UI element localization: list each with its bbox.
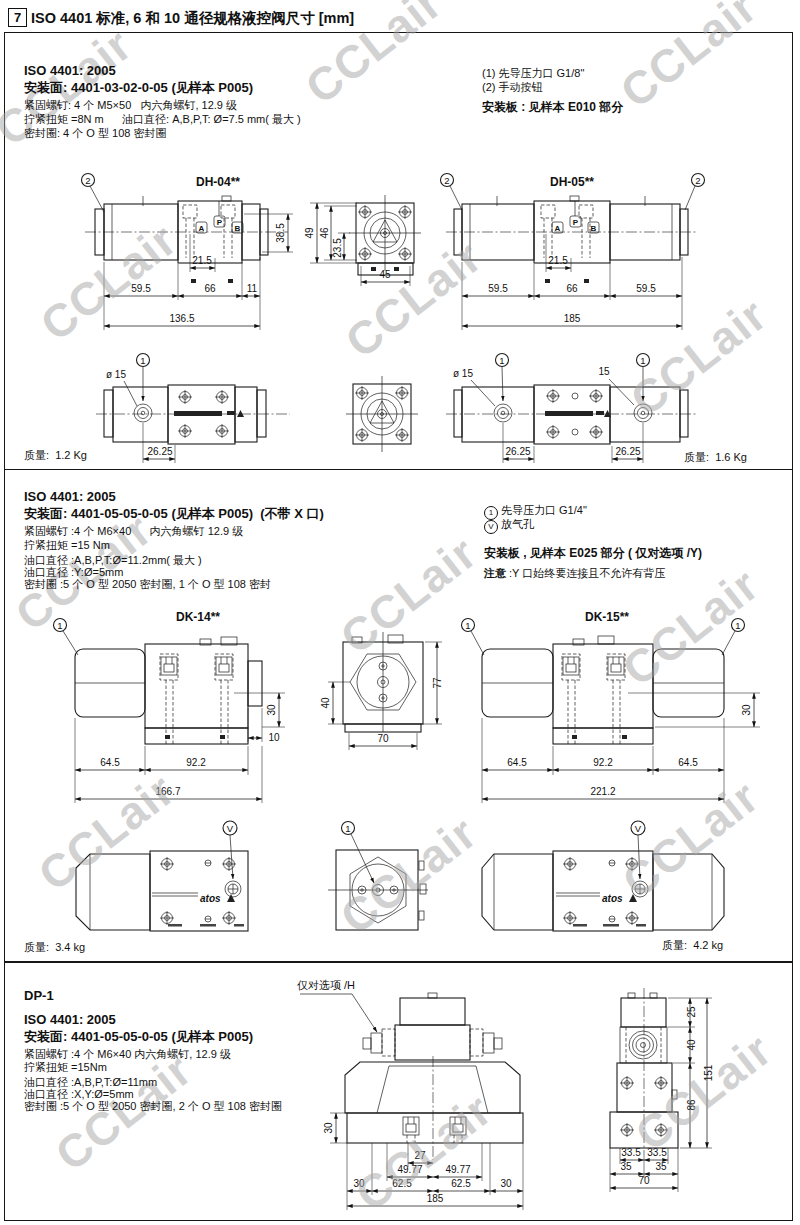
dim-label: 35: [655, 1161, 667, 1172]
section-number-badge: 7: [8, 8, 27, 27]
drawing-hexflange-top: 77 40 70: [320, 632, 443, 750]
s2-note1-text: 先导压力口 G1/4": [501, 504, 587, 516]
dim-label: 62.5: [392, 1178, 412, 1189]
callout-label: 2: [85, 175, 90, 186]
dim-label: 40: [686, 1039, 697, 1051]
s3-model: DP-1: [24, 988, 54, 1003]
drawing-hexflange-bottom: 1: [328, 822, 428, 931]
dim-label: 25: [686, 1006, 697, 1018]
s1-iso: ISO 4401: 2005: [24, 63, 116, 78]
drawing-flange-top: 49 46 23.5 45: [304, 195, 421, 286]
dim-label: 21.5: [548, 255, 568, 266]
dim-label: 64.5: [100, 757, 120, 768]
callout-label: 1: [345, 823, 350, 834]
dim-label: 10: [268, 732, 280, 743]
dim-label: 59.5: [131, 283, 151, 294]
dim-label: 33.5: [621, 1147, 641, 1158]
dim-label: 86: [686, 1099, 697, 1111]
s3-spec2: 拧紧扭矩 =15Nm: [24, 1060, 107, 1075]
dim-label: 59.5: [488, 283, 508, 294]
drawing-dp1-side: 25 40 86 151 33.5 33.5 35 35 70: [610, 988, 714, 1192]
dim-label: 15: [598, 366, 610, 377]
drawing-dp1-front: 30 27 49.77 49.77 30 62.5 62.5 30 185: [300, 993, 523, 1210]
dim-label: 77: [432, 677, 443, 689]
dim-label: 35: [620, 1161, 632, 1172]
callout-label: 1: [735, 620, 740, 631]
atos-triangle-icon: [629, 894, 637, 902]
s1-note2: (2) 手动按钮: [482, 80, 543, 95]
callout-label: V: [227, 823, 234, 834]
dim-label: 59.5: [636, 283, 656, 294]
dim-label: 151: [703, 1064, 714, 1081]
s2-spec1: 紧固螺钉 :4 个 M6×40 内六角螺钉 12.9 级: [24, 524, 243, 539]
dim-label: ø 15: [106, 369, 126, 380]
dim-label: 49: [304, 227, 315, 239]
s2-weight-right: 质量: 4.2 kg: [662, 938, 723, 953]
atos-logo: atos: [602, 893, 623, 904]
dim-label: 11: [247, 283, 258, 294]
dim-label: 64.5: [678, 757, 698, 768]
dim-label: 46: [319, 227, 330, 239]
s2-spec5: 密封圈 :5 个 O 型 2050 密封圈, 1 个 O 型 108 密封: [24, 577, 271, 592]
dim-label: ø 15: [453, 368, 473, 379]
port-p-label: P: [573, 218, 579, 227]
port-a-label: A: [555, 224, 561, 233]
dim-label: 49.77: [397, 1164, 422, 1175]
s1-spec1: 紧固螺钉: 4 个 M5×50 内六角螺钉, 12.9 级: [24, 98, 237, 113]
dim-label: 92.2: [593, 757, 613, 768]
drawing-dk15: DK-15** 1 1 30 64.5 92.: [462, 610, 761, 803]
dim-label: 62.5: [451, 1178, 471, 1189]
callout-label: 1: [465, 620, 470, 631]
dim-label: 26.25: [147, 446, 172, 457]
dim-label: 30: [500, 1178, 512, 1189]
s2-spec2: 拧紧扭矩 =15 Nm: [24, 538, 110, 553]
s3-mount: 安装面: 4401-05-05-0-05 (见样本 P005): [24, 1028, 253, 1046]
dim-label: 23.5: [332, 238, 343, 258]
s1-note3: 安装板 : 见样本 E010 部分: [482, 99, 623, 116]
dim-label: 64.5: [507, 757, 527, 768]
callout-label: 2: [695, 175, 700, 186]
dim-label: 27: [414, 1150, 426, 1161]
dim-label: 30: [353, 1178, 365, 1189]
dim-label: 185: [427, 1193, 444, 1204]
s1-spec3: 密封圈: 4 个 O 型 108 密封圈: [24, 126, 166, 141]
dim-label: 30: [323, 1122, 334, 1134]
dim-label: 221.2: [590, 786, 615, 797]
dim-label: 66: [566, 283, 578, 294]
dim-label: 26.25: [505, 446, 530, 457]
callout-label: 1: [57, 620, 62, 631]
drawing-dk15-topview: V atos: [482, 821, 724, 931]
port-p-label: P: [217, 218, 223, 227]
s2-weight-left: 质量: 3.4 kg: [24, 940, 85, 955]
dim-label: 30: [741, 704, 752, 716]
s2-mount: 安装面: 4401-05-05-0-05 (见样本 P005) (不带 X 口): [24, 505, 324, 523]
atos-logo: atos: [200, 893, 221, 904]
drawing-dh04-topview: 1 ø 15 26.25: [96, 354, 290, 464]
dim-label: 70: [638, 1175, 650, 1186]
dim-label: 136.5: [169, 313, 194, 324]
dim-label: 92.2: [186, 757, 206, 768]
dim-label: 66: [204, 283, 216, 294]
s1-note1: (1) 先导压力口 G1/8": [482, 66, 584, 81]
dim-label: 45: [379, 269, 391, 280]
drawing-flange-bottom: [346, 376, 418, 452]
page-title: ISO 4401 标准, 6 和 10 通径规格液控阀尺寸 [mm]: [31, 9, 354, 28]
s1-mount: 安装面: 4401-03-02-0-05 (见样本 P005): [24, 79, 253, 97]
dim-label: 21.5: [192, 255, 212, 266]
dim-label: 166.7: [155, 786, 180, 797]
s1-spec2: 拧紧扭矩 =8N m 油口直径: A,B,P,T: Ø=7.5 mm( 最大 ): [24, 112, 301, 127]
s2-note3: 安装板 , 见样本 E025 部分 ( 仅对选项 /Y): [484, 545, 702, 562]
port-b-label: B: [235, 224, 241, 233]
drawing-dh05-topview: 1 1 ø 15 15 26.25: [446, 354, 696, 464]
callout-label: 1: [140, 355, 145, 366]
s2-note4-label: 注意: [484, 567, 506, 579]
circled-v-icon: V: [484, 520, 498, 534]
dim-label: 40: [320, 697, 331, 709]
callout-label: 2: [444, 175, 449, 186]
dh04-title: DH-04**: [196, 175, 240, 189]
s2-note2-text: 放气孔: [501, 518, 534, 530]
port-a-label: A: [199, 224, 205, 233]
s2-note4: 注意 :Y 口始终要连接且不允许有背压: [484, 566, 665, 581]
dh05-title: DH-05**: [550, 175, 594, 189]
dim-label: 49.77: [445, 1164, 470, 1175]
s2-note2: V放气孔: [484, 517, 534, 534]
dim-label: 30: [266, 704, 277, 716]
drawing-dh05: DH-05** 2 2 A P B: [441, 174, 705, 331]
dim-label: 26.25: [615, 446, 640, 457]
s1-weight-right: 质量: 1.6 Kg: [684, 450, 747, 465]
s2-iso: ISO 4401: 2005: [24, 489, 116, 504]
drawing-dk14: DK-14** 1 30 10 64.5 92: [54, 610, 286, 803]
s3-spec5: 密封圈 :5 个 O 型 2050 密封圈, 2 个 O 型 108 密封圈: [24, 1099, 282, 1114]
callout-label: 1: [499, 355, 504, 366]
dim-label: 185: [564, 313, 581, 324]
drawing-dh04: DH-04** 2 A P B 38.5 21.5: [82, 174, 294, 331]
dk14-title: DK-14**: [176, 610, 220, 624]
dim-label: 38.5: [275, 223, 286, 243]
drawing-dk14-topview: V atos: [76, 821, 248, 931]
s3-option-h-label: 仅对选项 /H: [297, 978, 355, 993]
callout-label: 1: [640, 355, 645, 366]
port-b-label: B: [591, 224, 597, 233]
callout-label: V: [635, 823, 642, 834]
s2-note4-text: :Y 口始终要连接且不允许有背压: [506, 567, 665, 579]
s1-weight-left: 质量: 1.2 Kg: [24, 448, 87, 463]
dim-label: 70: [377, 733, 389, 744]
datasheet-page: 7 ISO 4401 标准, 6 和 10 通径规格液控阀尺寸 [mm] CCL…: [0, 0, 800, 1225]
dk15-title: DK-15**: [585, 610, 629, 624]
dim-label: 33.5: [647, 1147, 667, 1158]
s3-iso: ISO 4401: 2005: [24, 1012, 116, 1027]
